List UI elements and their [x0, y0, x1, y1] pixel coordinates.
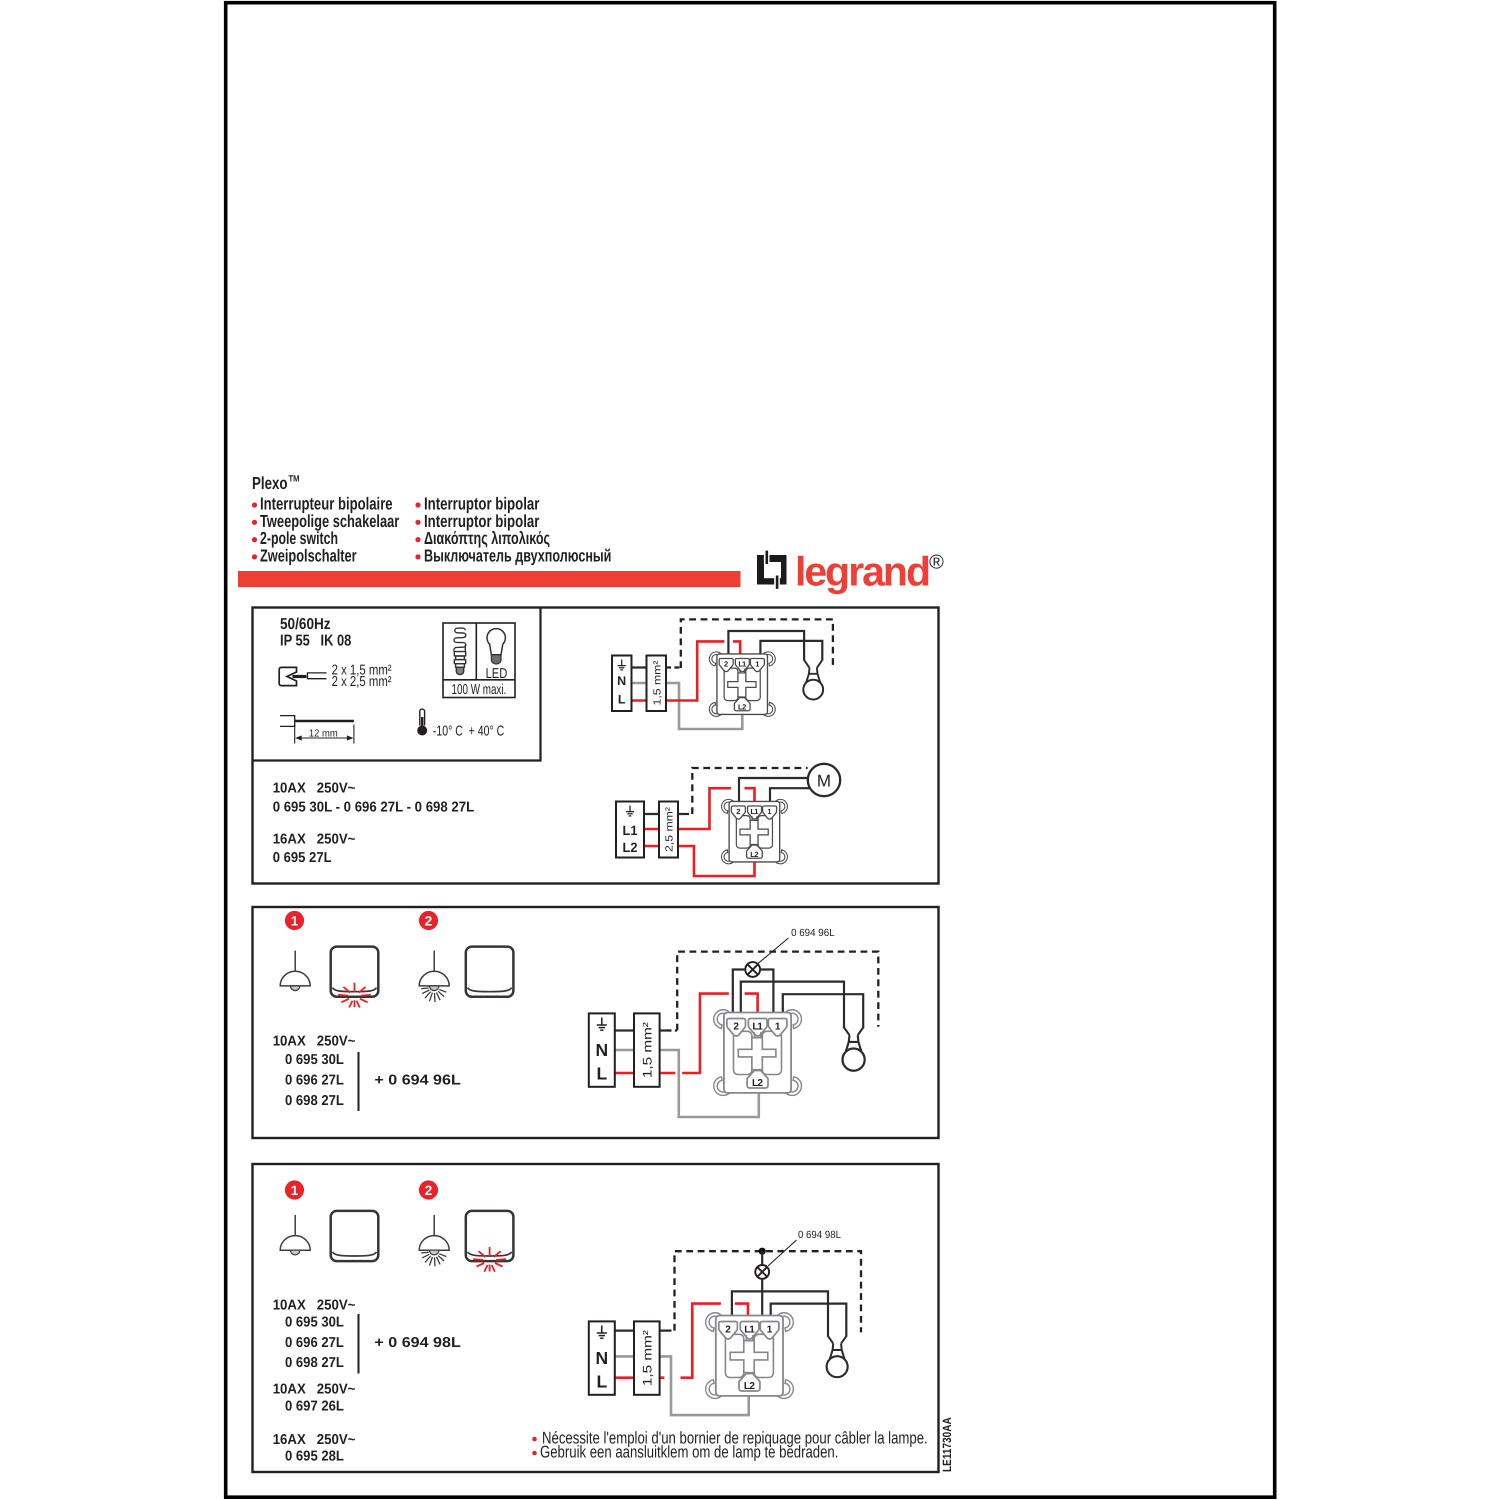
svg-text:N: N: [595, 1348, 608, 1368]
svg-text:0 695 30L: 0 695 30L: [285, 1052, 344, 1068]
svg-text:0 695 30L: 0 695 30L: [285, 1314, 344, 1330]
svg-text:+ 0 694 98L: + 0 694 98L: [374, 1335, 461, 1351]
svg-text:L1: L1: [623, 823, 638, 838]
svg-text:L2: L2: [623, 840, 638, 855]
svg-text:0 696 27L: 0 696 27L: [285, 1335, 344, 1351]
svg-text:L: L: [596, 1064, 607, 1084]
svg-text:0 695 30L - 0 696 27L - 0 698: 0 695 30L - 0 696 27L - 0 698 27L: [273, 799, 475, 815]
svg-text:0 695 27L: 0 695 27L: [273, 850, 332, 866]
svg-text:2,5 mm²: 2,5 mm²: [665, 806, 676, 852]
svg-text:Plexo: Plexo: [252, 473, 288, 493]
svg-text:®: ®: [929, 552, 944, 574]
svg-text:2 x 2,5 mm²: 2 x 2,5 mm²: [332, 674, 392, 690]
svg-text:50/60Hz: 50/60Hz: [280, 616, 331, 633]
svg-text:2: 2: [425, 914, 433, 929]
svg-text:100 W maxi.: 100 W maxi.: [452, 682, 507, 698]
svg-text:L: L: [596, 1372, 607, 1392]
svg-text:0 698 27L: 0 698 27L: [285, 1093, 344, 1109]
svg-text:Gebruik een aansluitklem om de: Gebruik een aansluitklem om de lamp te b…: [540, 1443, 838, 1462]
svg-text:1: 1: [291, 1183, 299, 1198]
svg-text:1,5 mm²: 1,5 mm²: [652, 660, 663, 706]
svg-text:0 697 26L: 0 697 26L: [285, 1398, 344, 1414]
svg-text:10AX 250V~: 10AX 250V~: [273, 1298, 356, 1314]
svg-text:+ 0 694 96L: + 0 694 96L: [374, 1073, 461, 1089]
svg-text:LE11730AA: LE11730AA: [940, 1417, 954, 1472]
svg-text:N: N: [617, 674, 626, 688]
svg-text:LED: LED: [486, 666, 508, 682]
svg-text:0 698 27L: 0 698 27L: [285, 1355, 344, 1371]
svg-text:-10° C + 40° C: -10° C + 40° C: [433, 723, 504, 739]
svg-text:12 mm: 12 mm: [309, 728, 338, 739]
svg-text:10AX 250V~: 10AX 250V~: [273, 1382, 356, 1398]
svg-text:16AX 250V~: 16AX 250V~: [273, 831, 356, 847]
svg-text:L: L: [618, 693, 626, 707]
svg-text:Выключатель двухполюсный: Выключатель двухполюсный: [424, 545, 611, 565]
svg-text:IP 55 IK 08: IP 55 IK 08: [280, 633, 351, 650]
svg-text:0 694 96L: 0 694 96L: [791, 928, 835, 939]
svg-text:1,5 mm²: 1,5 mm²: [641, 1330, 655, 1386]
svg-text:1,5 mm²: 1,5 mm²: [641, 1022, 655, 1078]
svg-text:10AX 250V~: 10AX 250V~: [273, 1034, 356, 1050]
svg-text:0 694 98L: 0 694 98L: [798, 1230, 841, 1241]
svg-text:0 696 27L: 0 696 27L: [285, 1073, 344, 1089]
svg-text:16AX 250V~: 16AX 250V~: [273, 1432, 356, 1448]
svg-text:2: 2: [425, 1183, 433, 1198]
svg-text:legrand: legrand: [795, 549, 929, 595]
svg-text:Zweipolschalter: Zweipolschalter: [260, 545, 357, 565]
svg-text:1: 1: [291, 914, 299, 929]
svg-text:0 695 28L: 0 695 28L: [285, 1449, 344, 1465]
svg-text:10AX 250V~: 10AX 250V~: [273, 781, 356, 797]
svg-text:M: M: [817, 772, 831, 791]
svg-text:TM: TM: [289, 474, 300, 484]
svg-text:N: N: [595, 1040, 608, 1060]
